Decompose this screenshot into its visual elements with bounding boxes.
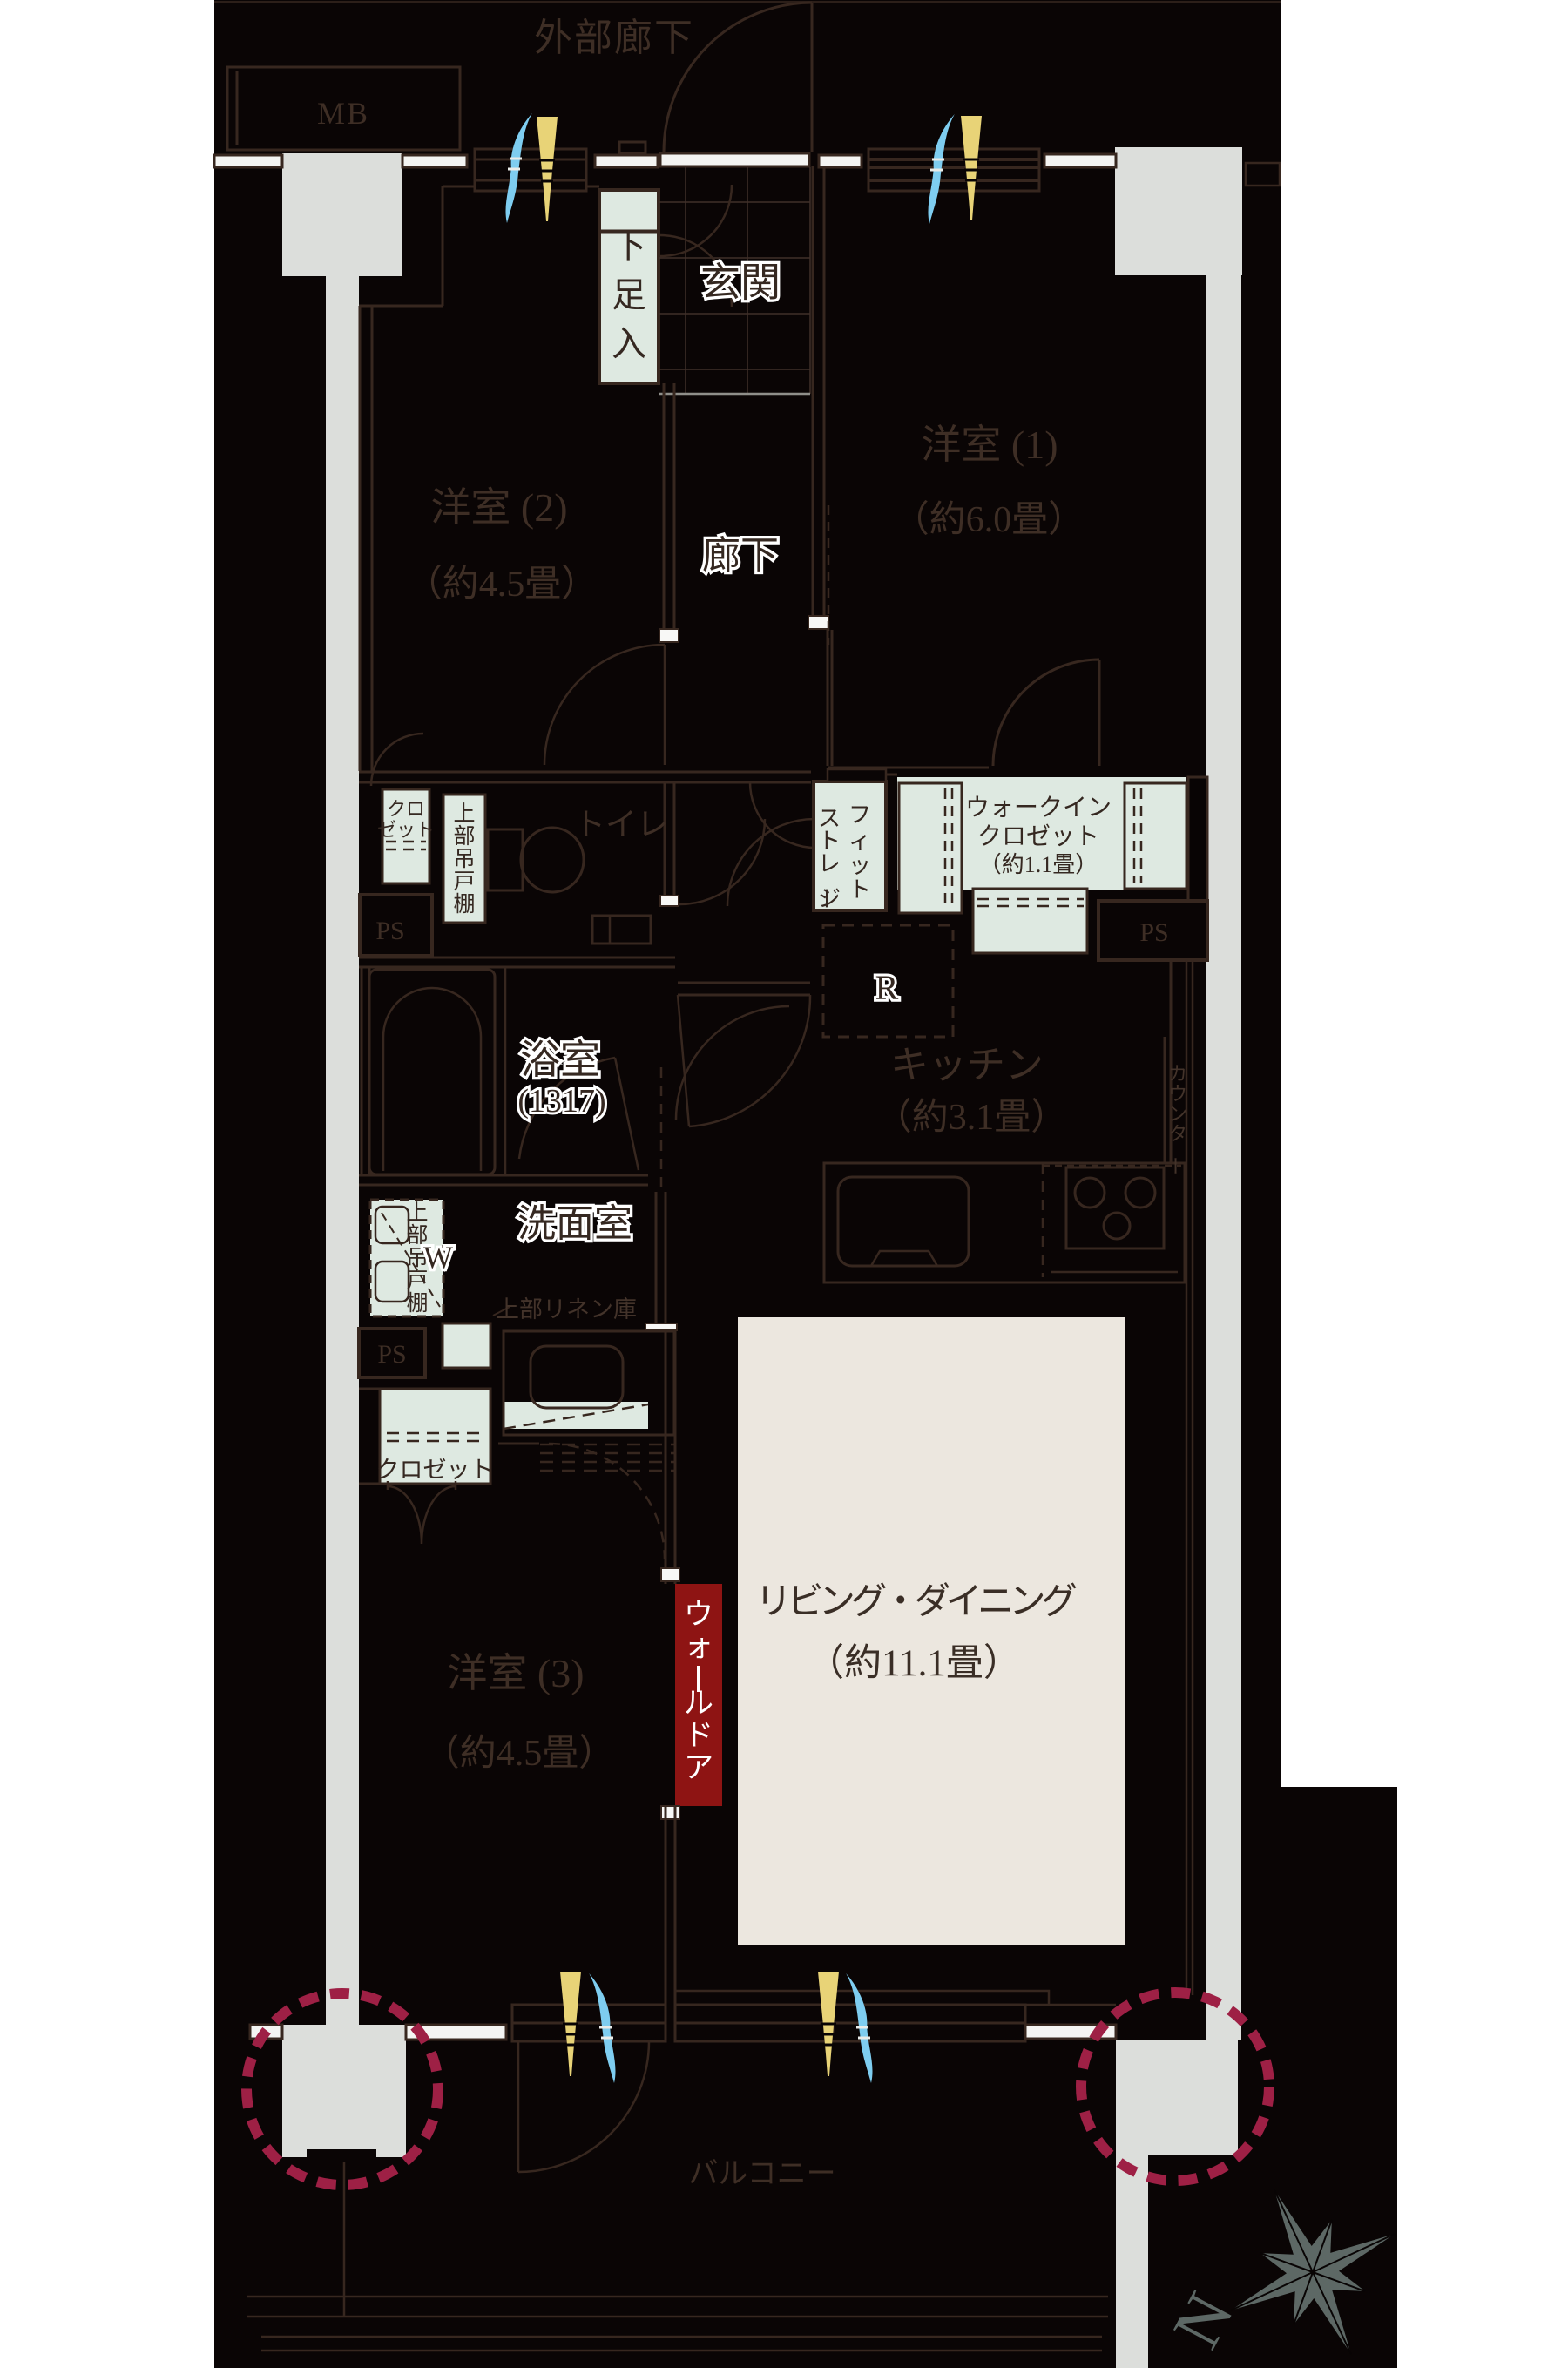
svg-text:洗面室: 洗面室 xyxy=(517,1202,632,1245)
svg-text:（約3.1畳）: （約3.1畳） xyxy=(875,1098,1068,1138)
svg-text:ウォルドア: ウォルドア xyxy=(684,1599,713,1784)
svg-text:クロゼット: クロゼット xyxy=(977,822,1099,850)
svg-text:ウォークイン: ウォークイン xyxy=(965,795,1112,822)
svg-text:浴室: 浴室 xyxy=(520,1038,600,1082)
svg-text:リビング・ダイニング: リビング・ダイニング xyxy=(755,1582,1078,1622)
svg-text:下足入: 下足入 xyxy=(612,227,646,363)
svg-text:上部リネン庫: 上部リネン庫 xyxy=(496,1296,637,1323)
svg-text:MB: MB xyxy=(317,96,369,131)
svg-text:洋室 (2): 洋室 (2) xyxy=(430,485,567,530)
svg-text:洋室 (3): 洋室 (3) xyxy=(447,1651,584,1695)
svg-text:(1317): (1317) xyxy=(517,1083,605,1120)
svg-text:（約4.5畳）: （約4.5畳） xyxy=(406,565,598,605)
svg-text:PS: PS xyxy=(377,1340,406,1369)
svg-text:バルコニー: バルコニー xyxy=(688,2158,835,2190)
svg-text:（約1.1畳）: （約1.1畳） xyxy=(979,852,1098,877)
svg-text:玄関: 玄関 xyxy=(700,260,781,305)
svg-text:クロゼット: クロゼット xyxy=(376,1457,494,1483)
svg-text:廊下: 廊下 xyxy=(702,534,779,577)
svg-text:トイレ: トイレ xyxy=(574,807,668,842)
svg-text:W: W xyxy=(423,1240,453,1275)
svg-text:外部廊下: 外部廊下 xyxy=(534,17,694,59)
svg-text:カウンター: カウンター xyxy=(1164,1063,1187,1175)
svg-text:（約11.1畳）: （約11.1畳） xyxy=(807,1643,1021,1684)
svg-text:洋室 (1): 洋室 (1) xyxy=(921,423,1058,467)
svg-text:上部吊戸棚: 上部吊戸棚 xyxy=(453,802,475,917)
svg-text:（約6.0畳）: （約6.0畳） xyxy=(893,500,1085,540)
svg-text:PS: PS xyxy=(375,917,404,945)
svg-text:フィット: フィット xyxy=(848,802,871,903)
svg-text:R: R xyxy=(875,968,899,1007)
svg-text:キッチン: キッチン xyxy=(890,1044,1044,1086)
svg-text:PS: PS xyxy=(1139,918,1168,947)
svg-text:（約4.5畳）: （約4.5畳） xyxy=(423,1734,616,1774)
